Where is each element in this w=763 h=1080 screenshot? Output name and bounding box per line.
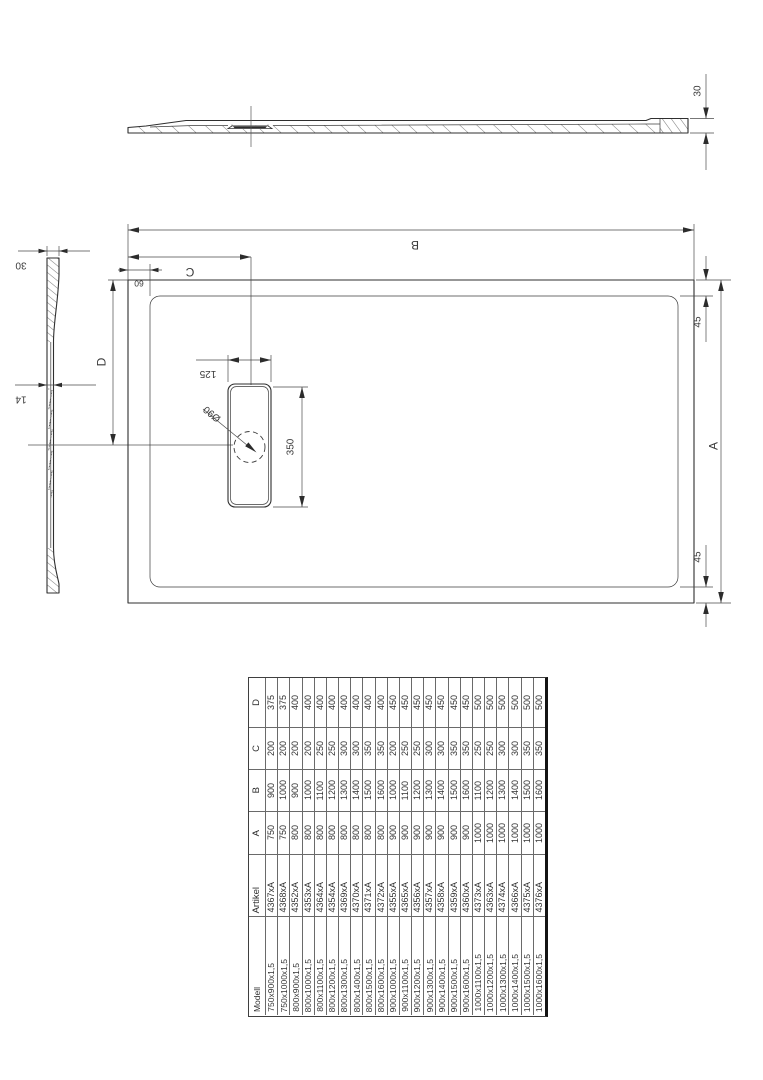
table-cell: 4371xA bbox=[363, 855, 375, 916]
table-header-label: C bbox=[252, 745, 262, 752]
table-cell-value: 1600 bbox=[535, 780, 544, 800]
table-cell-value: 1200 bbox=[328, 780, 337, 800]
table-cell-value: 200 bbox=[267, 741, 276, 756]
table-cell-value: 400 bbox=[304, 695, 313, 710]
table-cell: 800x1600x1,5 bbox=[376, 917, 388, 1015]
table-cell-value: 350 bbox=[364, 741, 373, 756]
table-cell: 800 bbox=[339, 812, 351, 854]
table-cell: 1000 bbox=[522, 812, 534, 854]
table-cell-value: 900 bbox=[437, 825, 446, 840]
table-cell-value: 800x1000x1,5 bbox=[304, 959, 313, 1012]
table-cell: 1200 bbox=[327, 770, 339, 811]
table-cell: 4369xA bbox=[339, 855, 351, 916]
table-cell: 1300 bbox=[497, 770, 509, 811]
table-cell-value: 900 bbox=[401, 825, 410, 840]
table-cell: 250 bbox=[485, 728, 497, 769]
table-cell-value: 375 bbox=[279, 695, 288, 710]
table-cell: 4359xA bbox=[449, 855, 461, 916]
drain-width-dimension: 125 bbox=[196, 355, 271, 382]
table-header-label: Artikel bbox=[252, 887, 262, 913]
table-cell: 900 bbox=[412, 812, 424, 854]
table-cell: 1100 bbox=[400, 770, 412, 811]
table-cell: 500 bbox=[485, 678, 497, 727]
table-cell-value: 450 bbox=[437, 695, 446, 710]
table-cell-value: 900 bbox=[462, 825, 471, 840]
table-cell: 4363xA bbox=[485, 855, 497, 916]
table-cell-value: 4371xA bbox=[364, 882, 373, 913]
table-cell-value: 450 bbox=[401, 695, 410, 710]
table-cell-value: 800 bbox=[377, 825, 386, 840]
table-cell: 1000 bbox=[497, 812, 509, 854]
table-cell: 300 bbox=[424, 728, 436, 769]
table-cell-value: 1000x1600x1,5 bbox=[535, 954, 544, 1012]
table-cell: 1000 bbox=[388, 770, 400, 811]
table-cell: 350 bbox=[522, 728, 534, 769]
table-cell: 1000x1200x1,5 bbox=[485, 917, 497, 1015]
table-cell-value: 1100 bbox=[316, 781, 325, 800]
dim-label-rim-inset-left: 60 bbox=[134, 279, 144, 289]
side-section-view: 30 14 bbox=[15, 246, 233, 612]
table-cell-value: 4353xA bbox=[304, 882, 313, 913]
table-cell: 400 bbox=[303, 678, 315, 727]
table-row-modell: Modell750x900x1,5750x1000x1,5800x900x1,5… bbox=[249, 917, 545, 1015]
table-cell-value: 200 bbox=[389, 741, 398, 756]
table-cell-value: 1000 bbox=[304, 780, 313, 800]
table-cell: 900x1300x1,5 bbox=[424, 917, 436, 1015]
table-cell: 1200 bbox=[485, 770, 497, 811]
size-table: D375375400400400400400400400400450450450… bbox=[248, 677, 548, 1017]
table-cell-value: 800 bbox=[328, 825, 337, 840]
table-cell-value: 800x900x1,5 bbox=[292, 963, 301, 1012]
table-cell: 1600 bbox=[376, 770, 388, 811]
dim-label-floor-thickness: 14 bbox=[15, 394, 27, 405]
table-cell: 400 bbox=[327, 678, 339, 727]
table-cell: 4373xA bbox=[473, 855, 485, 916]
table-cell-value: 300 bbox=[340, 741, 349, 756]
dim-label-plan-width: A bbox=[707, 442, 721, 450]
table-cell-value: 4355xA bbox=[389, 882, 398, 913]
table-cell: 1000x1600x1,5 bbox=[534, 917, 545, 1015]
table-cell-value: 4358xA bbox=[437, 882, 446, 913]
dim-label-plan-length: B bbox=[411, 238, 419, 252]
table-cell: 375 bbox=[278, 678, 290, 727]
table-cell: 400 bbox=[290, 678, 302, 727]
table-cell-value: 500 bbox=[511, 695, 520, 710]
table-cell: 900 bbox=[388, 812, 400, 854]
table-cell: 200 bbox=[303, 728, 315, 769]
table-cell: 250 bbox=[400, 728, 412, 769]
table-cell-value: 900x1100x1,5 bbox=[401, 959, 410, 1012]
table-cell: 1500 bbox=[449, 770, 461, 811]
table-cell-value: 200 bbox=[304, 741, 313, 756]
table-cell: 900x1000x1,5 bbox=[388, 917, 400, 1015]
table-cell: 750 bbox=[266, 812, 278, 854]
table-cell-value: 900x1200x1,5 bbox=[413, 959, 422, 1012]
table-cell: 1100 bbox=[315, 770, 327, 811]
table-cell: 1000 bbox=[534, 812, 545, 854]
table-cell-value: 1600 bbox=[462, 780, 471, 800]
table-cell: 1100 bbox=[473, 770, 485, 811]
drawing-sheet: 30 30 14 bbox=[0, 0, 763, 1080]
table-cell-value: 400 bbox=[316, 695, 325, 710]
table-cell: 500 bbox=[522, 678, 534, 727]
table-cell: 900x1100x1,5 bbox=[400, 917, 412, 1015]
table-cell: 1200 bbox=[412, 770, 424, 811]
table-cell-value: 1000 bbox=[279, 780, 288, 800]
table-cell: 1000 bbox=[278, 770, 290, 811]
table-cell-value: 4376xA bbox=[535, 882, 544, 913]
table-cell: 800 bbox=[351, 812, 363, 854]
table-cell-value: 750x1000x1,5 bbox=[280, 959, 289, 1012]
table-cell: 900 bbox=[400, 812, 412, 854]
table-cell-value: 1000 bbox=[523, 823, 532, 843]
plan-length-dimension: B bbox=[128, 224, 694, 280]
table-cell: 400 bbox=[315, 678, 327, 727]
table-cell-value: 1000 bbox=[389, 780, 398, 800]
table-header-label: D bbox=[252, 699, 262, 706]
table-cell-value: 4375xA bbox=[523, 882, 532, 913]
table-cell: 800x1400x1,5 bbox=[351, 917, 363, 1015]
drain-depth-dimension: D bbox=[95, 280, 129, 445]
table-cell: 4368xA bbox=[278, 855, 290, 916]
table-cell-value: 350 bbox=[535, 741, 544, 756]
table-cell: 450 bbox=[461, 678, 473, 727]
table-cell: 750 bbox=[278, 812, 290, 854]
table-cell-value: 375 bbox=[267, 695, 276, 710]
table-cell-value: 750 bbox=[279, 825, 288, 840]
table-cell-value: 450 bbox=[389, 695, 398, 710]
table-cell: 450 bbox=[424, 678, 436, 727]
table-cell: 1300 bbox=[339, 770, 351, 811]
table-cell-value: 1000 bbox=[511, 823, 520, 843]
table-cell-value: 300 bbox=[425, 741, 434, 756]
table-cell-value: 800 bbox=[291, 825, 300, 840]
table-cell-value: 500 bbox=[523, 695, 532, 710]
table-cell-value: 350 bbox=[462, 741, 471, 756]
table-cell-value: 300 bbox=[511, 741, 520, 756]
top-profile-view: 30 bbox=[118, 74, 714, 170]
table-cell: 300 bbox=[436, 728, 448, 769]
table-cell-value: 1300 bbox=[425, 780, 434, 800]
table-cell: 900 bbox=[436, 812, 448, 854]
table-cell-value: 800x1100x1,5 bbox=[316, 959, 325, 1012]
table-cell: 800 bbox=[376, 812, 388, 854]
table-cell-value: 200 bbox=[291, 741, 300, 756]
table-cell: 1000 bbox=[485, 812, 497, 854]
dim-label-section-rim-height: 30 bbox=[15, 260, 27, 271]
table-cell: 450 bbox=[449, 678, 461, 727]
table-cell: 900 bbox=[424, 812, 436, 854]
table-header-cell-c: C bbox=[249, 728, 266, 769]
table-cell: 4366xA bbox=[509, 855, 521, 916]
table-cell: 4374xA bbox=[497, 855, 509, 916]
dim-label-profile-height: 30 bbox=[693, 85, 704, 97]
table-cell: 750x900x1,5 bbox=[266, 917, 278, 1015]
table-cell-value: 1500 bbox=[523, 780, 532, 800]
table-cell-value: 1000x1400x1,5 bbox=[511, 954, 520, 1012]
table-cell: 1500 bbox=[363, 770, 375, 811]
table-cell-value: 250 bbox=[413, 741, 422, 756]
table-cell: 800x1500x1,5 bbox=[363, 917, 375, 1015]
table-cell-value: 4366xA bbox=[511, 882, 520, 913]
table-cell: 500 bbox=[509, 678, 521, 727]
table-cell-value: 4374xA bbox=[498, 882, 507, 913]
table-cell-value: 4357xA bbox=[425, 882, 434, 913]
table-cell-value: 250 bbox=[316, 741, 325, 756]
table-cell: 500 bbox=[534, 678, 545, 727]
table-cell-value: 200 bbox=[279, 741, 288, 756]
table-cell-value: 4373xA bbox=[474, 882, 483, 913]
table-cell-value: 1000x1100x1,5 bbox=[474, 954, 483, 1012]
dim-label-drain-offset: C bbox=[185, 265, 194, 279]
table-cell-value: 900 bbox=[425, 825, 434, 840]
table-cell: 1000x1500x1,5 bbox=[522, 917, 534, 1015]
table-cell-value: 4356xA bbox=[413, 882, 422, 913]
table-cell-value: 1000x1500x1,5 bbox=[523, 954, 532, 1012]
table-cell: 400 bbox=[351, 678, 363, 727]
table-cell-value: 250 bbox=[328, 741, 337, 756]
table-cell-value: 900x1600x1,5 bbox=[462, 959, 471, 1012]
dim-label-drain-width: 125 bbox=[199, 368, 216, 379]
table-cell: 250 bbox=[315, 728, 327, 769]
table-cell: 800 bbox=[327, 812, 339, 854]
table-cell: 900x1400x1,5 bbox=[436, 917, 448, 1015]
table-header-label: B bbox=[252, 787, 262, 793]
table-header-cell-d: D bbox=[249, 678, 266, 727]
table-cell: 4372xA bbox=[376, 855, 388, 916]
table-cell: 1000 bbox=[509, 812, 521, 854]
table-cell: 900x1500x1,5 bbox=[449, 917, 461, 1015]
table-cell-value: 4370xA bbox=[352, 882, 361, 913]
table-header-cell-a: A bbox=[249, 812, 266, 854]
table-cell-value: 300 bbox=[352, 741, 361, 756]
table-cell-value: 800x1400x1,5 bbox=[353, 959, 362, 1012]
table-row-artikel: Artikel4367xA4368xA4352xA4353xA4364xA435… bbox=[249, 855, 545, 917]
table-cell: 250 bbox=[327, 728, 339, 769]
table-cell: 4360xA bbox=[461, 855, 473, 916]
table-cell: 4367xA bbox=[266, 855, 278, 916]
table-row-d: D375375400400400400400400400400450450450… bbox=[249, 678, 545, 728]
table-header-cell-artikel: Artikel bbox=[249, 855, 266, 916]
table-cell: 400 bbox=[339, 678, 351, 727]
table-cell-value: 4367xA bbox=[267, 882, 276, 913]
table-cell: 1300 bbox=[424, 770, 436, 811]
profile-inner-surface bbox=[150, 124, 660, 127]
table-cell-value: 350 bbox=[377, 741, 386, 756]
table-cell-value: 500 bbox=[474, 695, 483, 710]
table-cell-value: 900 bbox=[450, 825, 459, 840]
table-cell: 900 bbox=[266, 770, 278, 811]
table-cell-value: 900 bbox=[267, 783, 276, 798]
table-cell: 350 bbox=[363, 728, 375, 769]
dim-label-rim-inset-top: 45 bbox=[693, 316, 704, 328]
table-cell: 1600 bbox=[461, 770, 473, 811]
table-cell-value: 500 bbox=[486, 695, 495, 710]
profile-drain-fitting bbox=[228, 125, 272, 129]
table-cell: 500 bbox=[497, 678, 509, 727]
table-cell: 4376xA bbox=[534, 855, 545, 916]
table-cell-value: 4369xA bbox=[340, 882, 349, 913]
table-cell: 900 bbox=[449, 812, 461, 854]
table-header-cell-b: B bbox=[249, 770, 266, 811]
table-cell: 450 bbox=[436, 678, 448, 727]
table-cell: 250 bbox=[412, 728, 424, 769]
dim-label-drain-depth: D bbox=[95, 357, 109, 366]
table-cell: 4370xA bbox=[351, 855, 363, 916]
table-cell-value: 4354xA bbox=[328, 882, 337, 913]
table-cell: 800 bbox=[363, 812, 375, 854]
table-cell: 300 bbox=[351, 728, 363, 769]
table-cell-value: 800x1200x1,5 bbox=[328, 959, 337, 1012]
table-cell: 200 bbox=[290, 728, 302, 769]
table-cell-value: 450 bbox=[462, 695, 471, 710]
table-cell: 1400 bbox=[509, 770, 521, 811]
table-cell: 300 bbox=[497, 728, 509, 769]
drain-length-dimension: 350 bbox=[273, 387, 308, 507]
table-cell-value: 4352xA bbox=[291, 882, 300, 913]
table-cell-value: 900 bbox=[291, 783, 300, 798]
table-cell: 4353xA bbox=[303, 855, 315, 916]
table-row-c: C200200200200250250300300350350200250250… bbox=[249, 728, 545, 770]
table-cell: 4375xA bbox=[522, 855, 534, 916]
table-cell: 450 bbox=[400, 678, 412, 727]
table-cell: 300 bbox=[509, 728, 521, 769]
table-cell-value: 450 bbox=[413, 695, 422, 710]
table-cell-value: 4372xA bbox=[377, 882, 386, 913]
table-cell: 500 bbox=[473, 678, 485, 727]
table-cell-value: 800 bbox=[352, 825, 361, 840]
table-cell-value: 4365xA bbox=[401, 882, 410, 913]
table-cell-value: 1100 bbox=[474, 781, 483, 800]
table-cell-value: 400 bbox=[340, 695, 349, 710]
table-row-b: B900100090010001100120013001400150016001… bbox=[249, 770, 545, 812]
table-cell-value: 1000 bbox=[498, 823, 507, 843]
table-cell-value: 250 bbox=[474, 741, 483, 756]
table-cell: 450 bbox=[388, 678, 400, 727]
table-cell-value: 250 bbox=[486, 741, 495, 756]
table-cell: 450 bbox=[412, 678, 424, 727]
table-cell-value: 300 bbox=[498, 741, 507, 756]
table-cell: 4356xA bbox=[412, 855, 424, 916]
table-cell-value: 1200 bbox=[413, 780, 422, 800]
table-cell-value: 800 bbox=[304, 825, 313, 840]
table-cell: 300 bbox=[339, 728, 351, 769]
table-cell-value: 1300 bbox=[340, 780, 349, 800]
profile-rim-hatch-pattern bbox=[652, 117, 701, 135]
table-cell-value: 500 bbox=[535, 695, 544, 710]
table-cell-value: 800 bbox=[316, 825, 325, 840]
dim-label-drain-length: 350 bbox=[286, 438, 297, 455]
table-cell: 350 bbox=[376, 728, 388, 769]
drain-offset-dimension: C bbox=[128, 254, 251, 279]
table-cell-value: 1400 bbox=[511, 780, 520, 800]
table-cell-value: 900x1500x1,5 bbox=[450, 959, 459, 1012]
table-cell-value: 800 bbox=[340, 825, 349, 840]
table-cell-value: 750 bbox=[267, 825, 276, 840]
table-cell-value: 350 bbox=[523, 741, 532, 756]
table-cell-value: 1400 bbox=[437, 780, 446, 800]
table-cell-value: 1000 bbox=[535, 823, 544, 843]
table-row-a: A750750800800800800800800800800900900900… bbox=[249, 812, 545, 855]
table-cell: 1400 bbox=[351, 770, 363, 811]
table-cell: 800x900x1,5 bbox=[290, 917, 302, 1015]
table-cell-value: 1100 bbox=[401, 781, 410, 800]
table-cell: 900 bbox=[290, 770, 302, 811]
side-section-outline bbox=[47, 258, 59, 593]
table-cell: 4364xA bbox=[315, 855, 327, 916]
table-cell-value: 450 bbox=[425, 695, 434, 710]
table-cell-value: 350 bbox=[450, 741, 459, 756]
table-cell: 800x1000x1,5 bbox=[303, 917, 315, 1015]
table-cell-value: 4360xA bbox=[462, 882, 471, 913]
table-cell: 900 bbox=[461, 812, 473, 854]
table-cell-value: 400 bbox=[377, 695, 386, 710]
tray-inner-floor-edge bbox=[150, 296, 678, 587]
profile-height-dimension: 30 bbox=[690, 74, 714, 170]
table-cell: 4365xA bbox=[400, 855, 412, 916]
table-cell-value: 1400 bbox=[352, 780, 361, 800]
table-cell-value: 1000 bbox=[486, 823, 495, 843]
table-cell: 375 bbox=[266, 678, 278, 727]
table-cell-value: 4359xA bbox=[450, 882, 459, 913]
right-side-dimensions: 45 A 45 bbox=[680, 256, 731, 627]
table-cell-value: 250 bbox=[401, 741, 410, 756]
table-cell: 4355xA bbox=[388, 855, 400, 916]
table-cell-value: 1300 bbox=[498, 780, 507, 800]
table-cell: 200 bbox=[388, 728, 400, 769]
table-cell: 350 bbox=[461, 728, 473, 769]
table-cell: 1000 bbox=[303, 770, 315, 811]
table-cell: 1600 bbox=[534, 770, 545, 811]
table-cell-value: 900 bbox=[389, 825, 398, 840]
table-cell: 1500 bbox=[522, 770, 534, 811]
table-cell: 800x1200x1,5 bbox=[327, 917, 339, 1015]
table-cell: 400 bbox=[363, 678, 375, 727]
table-cell-value: 400 bbox=[291, 695, 300, 710]
table-cell-value: 1200 bbox=[486, 780, 495, 800]
table-header-label: A bbox=[252, 830, 262, 836]
table-cell-value: 900x1400x1,5 bbox=[438, 959, 447, 1012]
plan-view: B C 60 bbox=[95, 224, 732, 627]
dim-label-drain-diameter: Ø90 bbox=[201, 403, 223, 424]
table-cell: 900x1600x1,5 bbox=[461, 917, 473, 1015]
table-cell-value: 900x1300x1,5 bbox=[426, 959, 435, 1012]
table-cell: 200 bbox=[266, 728, 278, 769]
table-cell: 1400 bbox=[436, 770, 448, 811]
table-cell: 1000 bbox=[473, 812, 485, 854]
table-cell-value: 450 bbox=[450, 695, 459, 710]
floor-thickness-dimension: 14 bbox=[15, 383, 96, 405]
table-cell: 1000x1100x1,5 bbox=[473, 917, 485, 1015]
table-cell: 400 bbox=[376, 678, 388, 727]
table-cell: 250 bbox=[473, 728, 485, 769]
table-cell-value: 400 bbox=[352, 695, 361, 710]
dim-label-rim-inset-bottom: 45 bbox=[693, 551, 704, 563]
table-cell: 4354xA bbox=[327, 855, 339, 916]
table-cell: 4358xA bbox=[436, 855, 448, 916]
table-cell-value: 1000 bbox=[474, 823, 483, 843]
table-cell-value: 500 bbox=[498, 695, 507, 710]
table-cell: 200 bbox=[278, 728, 290, 769]
table-cell: 800 bbox=[303, 812, 315, 854]
table-cell-value: 4363xA bbox=[486, 882, 495, 913]
table-cell: 800x1300x1,5 bbox=[339, 917, 351, 1015]
table-cell-value: 400 bbox=[364, 695, 373, 710]
table-cell-value: 800x1600x1,5 bbox=[377, 959, 386, 1012]
table-cell: 800 bbox=[290, 812, 302, 854]
table-cell-value: 1000x1200x1,5 bbox=[486, 954, 495, 1012]
table-cell-value: 1000x1300x1,5 bbox=[499, 954, 508, 1012]
